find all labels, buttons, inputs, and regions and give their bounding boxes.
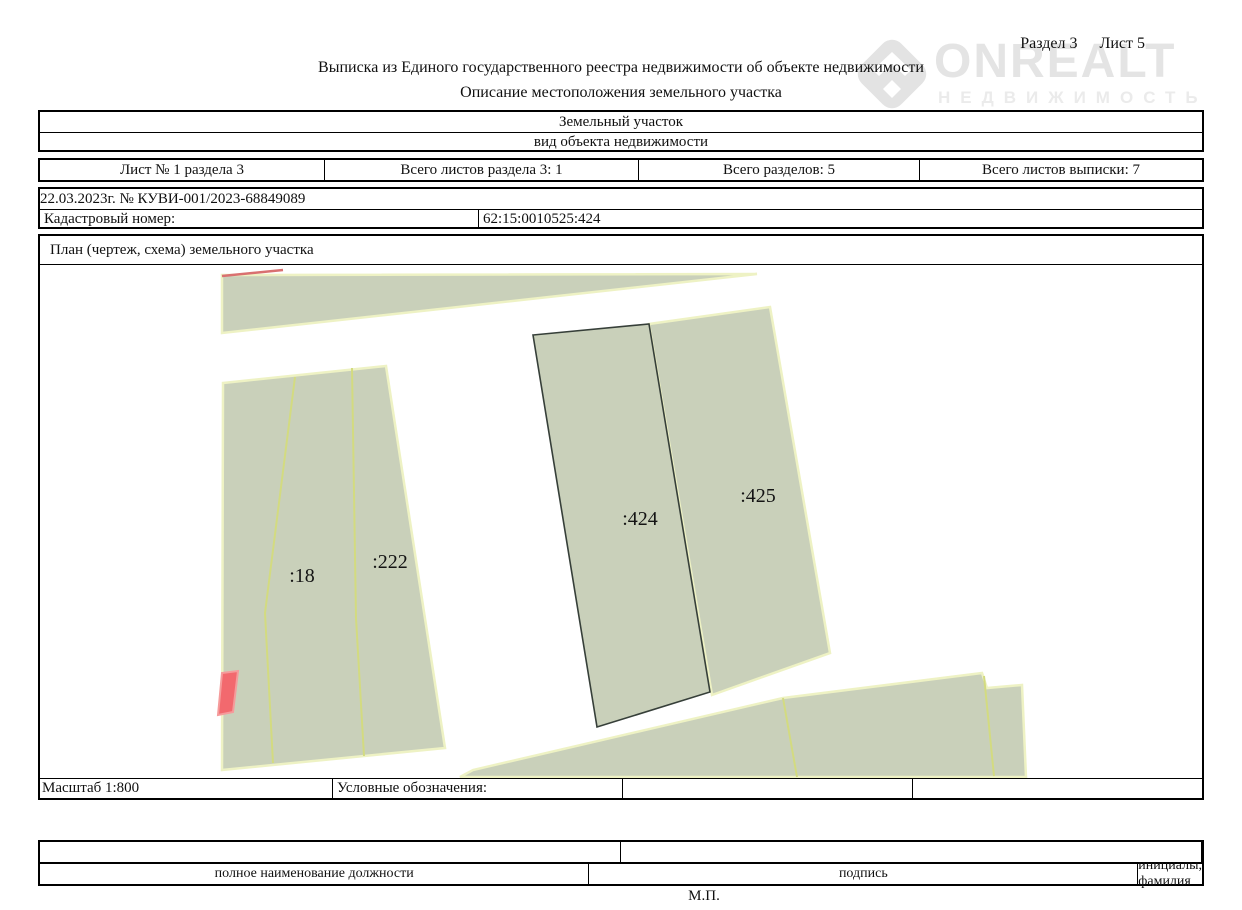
- parcel-425-label: :425: [740, 485, 776, 507]
- sheets-info-cell: Всего листов раздела 3: 1: [324, 160, 638, 180]
- signature-caption: подпись: [588, 864, 1137, 884]
- object-type-table: Земельный участок вид объекта недвижимос…: [38, 110, 1204, 152]
- document-title: Выписка из Единого государственного реес…: [0, 59, 1242, 77]
- request-info-table: 22.03.2023г. № КУВИ-001/2023-68849089 Ка…: [38, 187, 1204, 229]
- section-sheet-header: Раздел 3 Лист 5: [1002, 35, 1145, 53]
- left-parcel-block-shape: [222, 366, 445, 770]
- cadastral-number-value: 62:15:0010525:424: [478, 210, 1202, 229]
- document-subtitle: Описание местоположения земельного участ…: [0, 84, 1242, 102]
- sheets-info-cell: Всего листов выписки: 7: [919, 160, 1202, 180]
- name-caption: инициалы, фамилия: [1137, 864, 1202, 884]
- cadastral-number-label: Кадастровый номер:: [40, 210, 478, 229]
- plan-table: План (чертеж, схема) земельного участка …: [38, 234, 1204, 800]
- parcel-222-label: :222: [372, 551, 408, 573]
- bottom-strip-parcel-shape: [460, 673, 1026, 777]
- legend-label: Условные обозначения:: [332, 779, 622, 798]
- section-label: Раздел 3: [1020, 35, 1077, 52]
- plan-header: План (чертеж, схема) земельного участка: [40, 236, 1202, 265]
- sheets-info-cell: Лист № 1 раздела 3: [40, 160, 324, 180]
- request-date-number: 22.03.2023г. № КУВИ-001/2023-68849089: [40, 189, 1202, 209]
- plan-footer-row: Масштаб 1:800 Условные обозначения:: [40, 778, 1202, 798]
- signature-input-cell: [620, 842, 1201, 862]
- parcel-18-label: :18: [289, 565, 315, 587]
- document-page: ONREALT НЕДВИЖИМОСТЬ Раздел 3 Лист 5 Вып…: [0, 0, 1242, 910]
- object-type-value: Земельный участок: [40, 112, 1202, 132]
- stamp-label: М.П.: [538, 888, 870, 905]
- signature-table: полное наименование должности подпись ин…: [38, 840, 1204, 886]
- position-input-cell: [40, 842, 620, 862]
- parcel-424-label: :424: [622, 508, 658, 530]
- cadastral-map: :18 :222 :424 :425: [40, 265, 1202, 778]
- object-type-caption: вид объекта недвижимости: [40, 132, 1202, 152]
- position-caption: полное наименование должности: [40, 864, 588, 884]
- scale-label: Масштаб 1:800: [40, 779, 332, 798]
- sheets-info-cell: Всего разделов: 5: [638, 160, 919, 180]
- empty-cell: [622, 779, 912, 798]
- sheets-info-table: Лист № 1 раздела 3 Всего листов раздела …: [38, 158, 1204, 182]
- sheet-label: Лист 5: [1099, 35, 1145, 52]
- empty-cell: [912, 779, 1202, 798]
